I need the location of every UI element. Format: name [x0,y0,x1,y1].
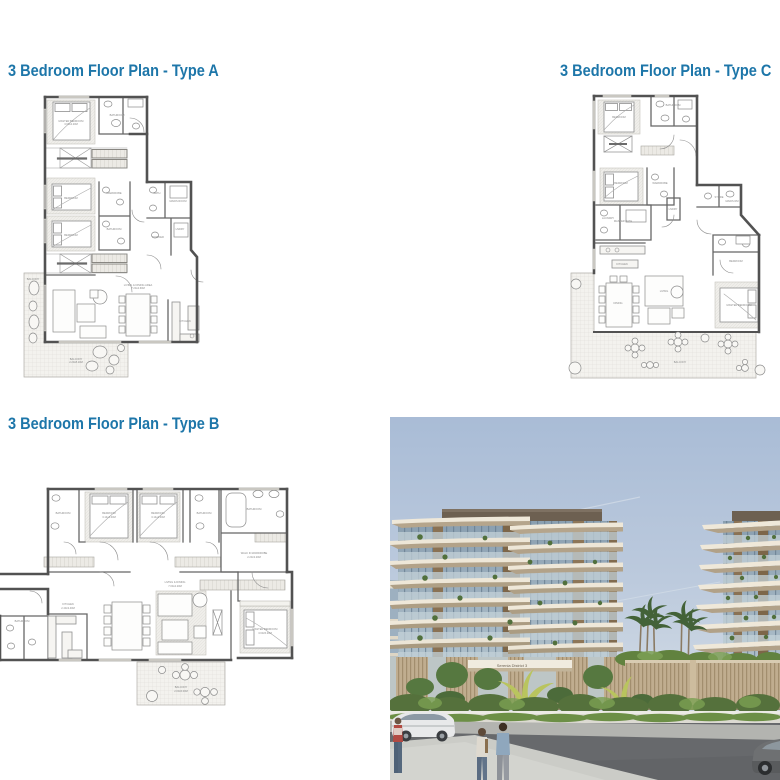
svg-text:3.14x4.40M: 3.14x4.40M [102,515,116,519]
svg-text:BEDROOM: BEDROOM [102,511,115,515]
svg-text:MASTER BEDROOM: MASTER BEDROOM [727,303,752,307]
svg-text:BEDROOM: BEDROOM [614,181,627,185]
svg-text:WALK IN WARDROBE: WALK IN WARDROBE [241,551,268,555]
svg-text:BATHROOM: BATHROOM [197,511,212,515]
svg-text:BATHROOM: BATHROOM [15,619,30,623]
svg-text:MAIDS ROOM: MAIDS ROOM [169,199,186,203]
svg-text:Serenia District 3: Serenia District 3 [497,663,528,668]
svg-text:BALCONY: BALCONY [27,277,40,281]
svg-text:BALCONY: BALCONY [674,360,687,364]
svg-text:LAUNDRY: LAUNDRY [602,216,615,220]
svg-text:KITCHEN: KITCHEN [179,319,191,323]
svg-text:BEDROOM: BEDROOM [64,196,77,200]
svg-text:2.40x3.40M: 2.40x3.40M [61,606,75,610]
svg-text:LNDRY: LNDRY [669,207,678,211]
svg-text:LNDRY: LNDRY [176,227,185,231]
svg-text:DINING: DINING [613,301,622,305]
svg-text:7.00x4.20M: 7.00x4.20M [168,584,182,588]
svg-text:3.14x4.40M: 3.14x4.40M [151,515,165,519]
svg-text:WARDROBE: WARDROBE [106,191,121,195]
svg-text:BEDROOM: BEDROOM [151,511,164,515]
svg-text:BATH: BATH [154,191,161,195]
svg-text:BEDROOM: BEDROOM [729,259,742,263]
svg-text:MAIDS RM: MAIDS RM [726,199,739,203]
svg-text:MASTER BEDROOM: MASTER BEDROOM [253,627,278,631]
svg-text:3.60x5.20M: 3.60x5.20M [258,631,272,635]
svg-text:BEDROOM: BEDROOM [64,233,77,237]
svg-text:BATHROOM: BATHROOM [56,511,71,515]
svg-text:BATHROOM: BATHROOM [110,113,125,117]
svg-text:KITCHEN: KITCHEN [62,602,74,606]
svg-text:BATHROOM: BATHROOM [247,507,262,511]
svg-text:BALCONY: BALCONY [175,685,188,689]
svg-text:STORE: STORE [715,195,724,199]
svg-text:2.20x8.10M: 2.20x8.10M [69,360,83,364]
svg-text:POWDER: POWDER [152,235,164,239]
svg-text:MASTER BATH: MASTER BATH [614,219,632,223]
svg-text:2.00x6.00M: 2.00x6.00M [174,689,188,693]
svg-text:WARDROBE: WARDROBE [652,181,667,185]
svg-text:BATHROOM: BATHROOM [666,103,681,107]
svg-text:LIVING: LIVING [660,289,669,293]
svg-text:BEDROOM: BEDROOM [612,115,625,119]
svg-text:7.20x4.60M: 7.20x4.60M [131,286,145,290]
svg-text:2.20x3.20M: 2.20x3.20M [247,555,261,559]
svg-text:LIVING & DINING: LIVING & DINING [165,580,186,584]
svg-text:BATHROOM: BATHROOM [107,227,122,231]
svg-text:3.60x4.20M: 3.60x4.20M [64,122,78,126]
svg-text:KITCHEN: KITCHEN [616,262,628,266]
